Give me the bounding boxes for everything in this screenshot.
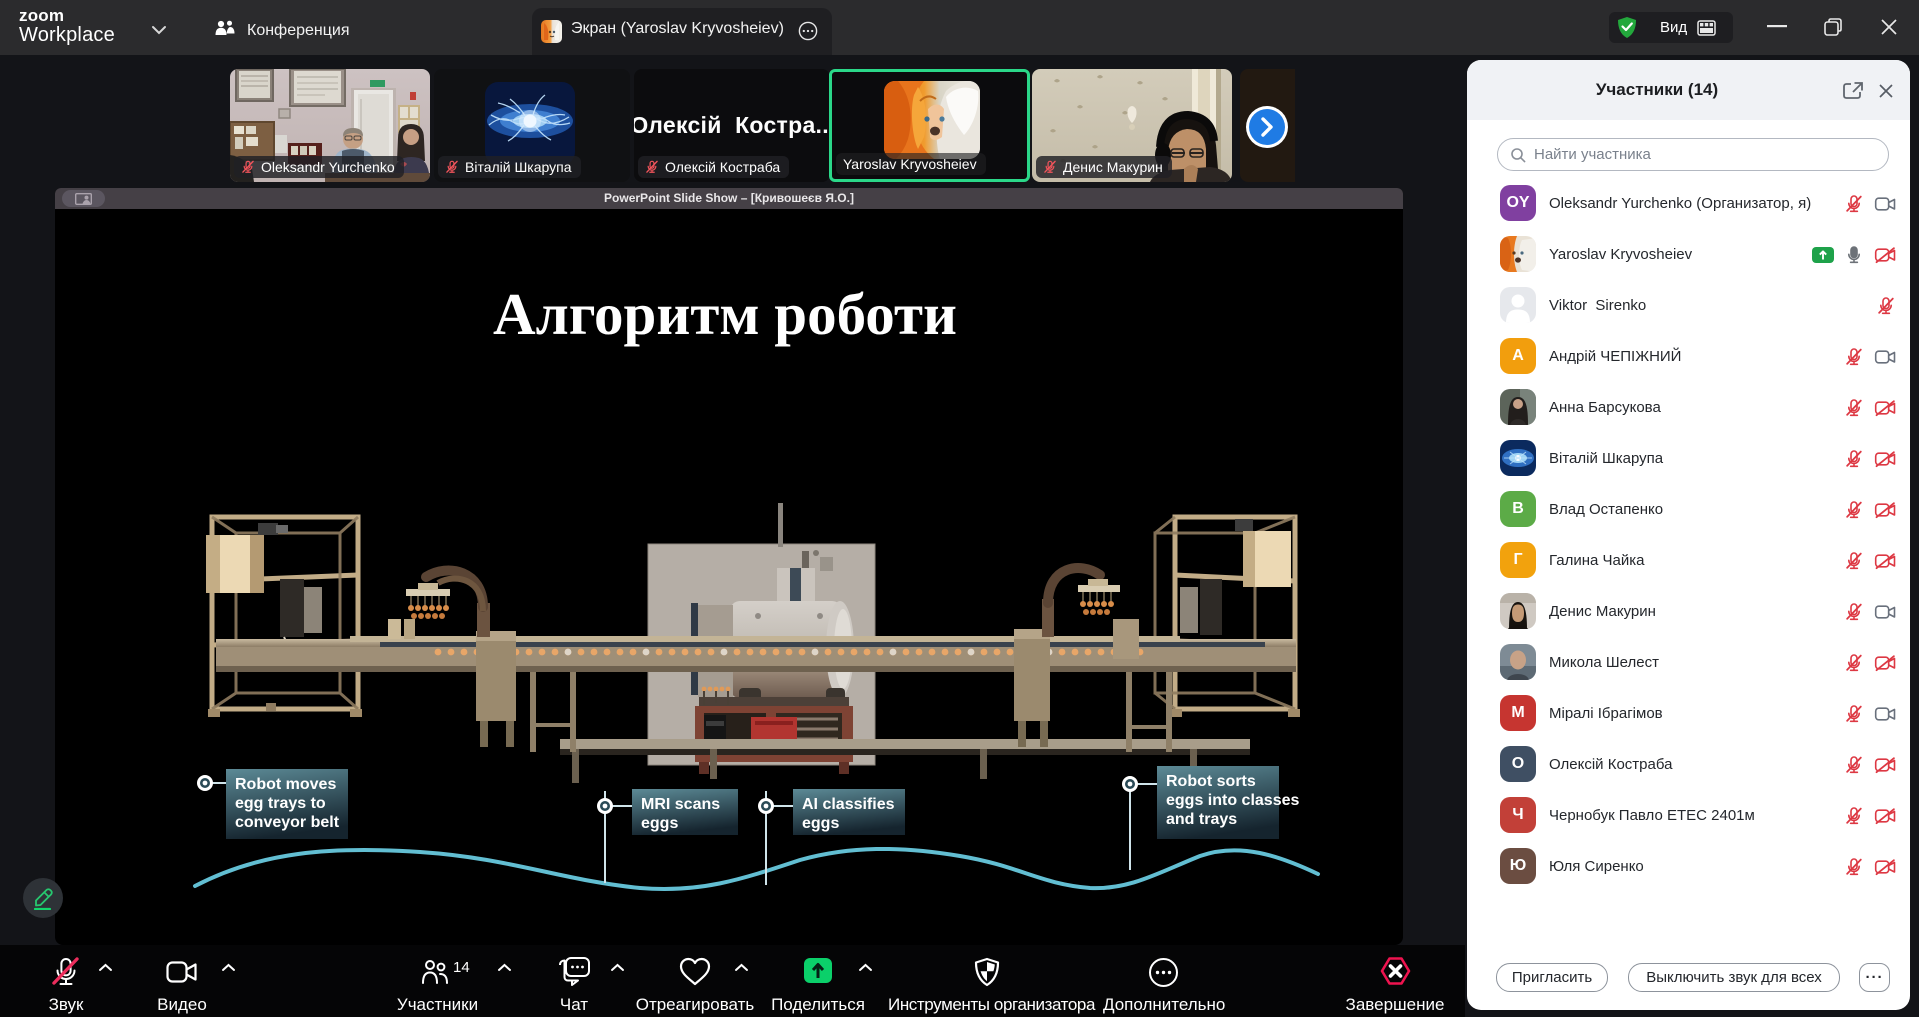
svg-text:eggs: eggs (641, 815, 678, 832)
svg-text:AI classifies: AI classifies (802, 796, 895, 813)
svg-text:egg trays to: egg trays to (235, 795, 326, 812)
svg-text:eggs: eggs (802, 815, 839, 832)
svg-text:eggs into classes: eggs into classes (1166, 792, 1299, 809)
svg-text:Robot moves: Robot moves (235, 776, 336, 793)
svg-text:conveyor belt: conveyor belt (235, 814, 340, 831)
svg-text:Robot sorts: Robot sorts (1166, 773, 1256, 790)
svg-text:and trays: and trays (1166, 811, 1237, 828)
svg-text:MRI scans: MRI scans (641, 796, 720, 813)
